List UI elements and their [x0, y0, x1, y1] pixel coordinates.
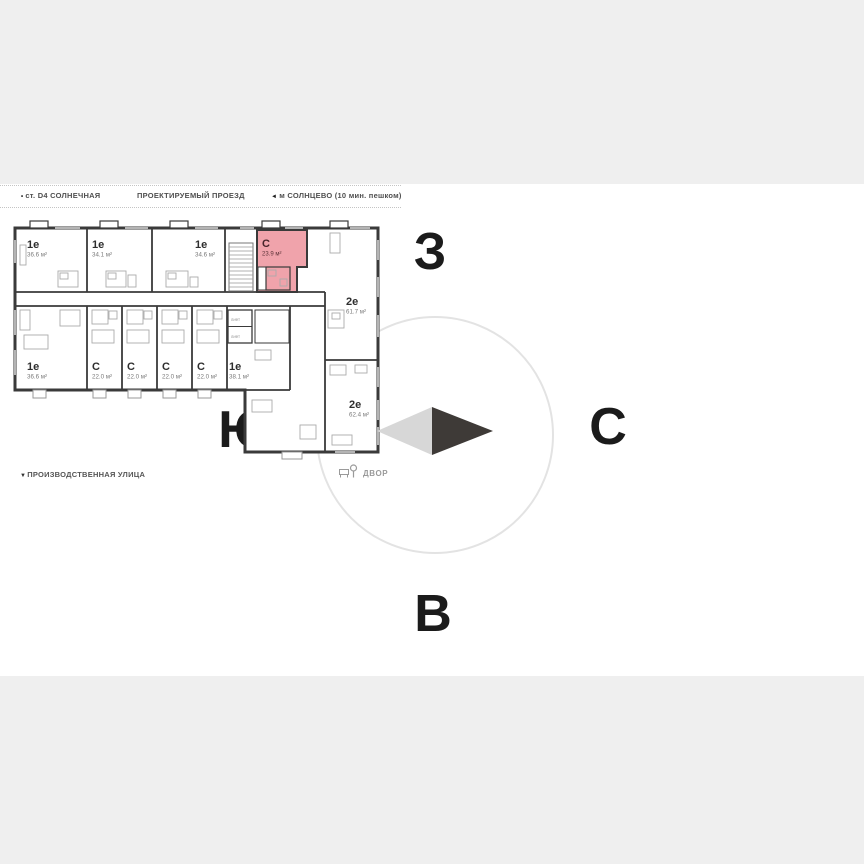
apt-area: 34.6 м²	[195, 252, 215, 259]
apt-type: С	[127, 361, 135, 373]
apt-area: 22.0 м²	[197, 374, 217, 381]
street-label-metro: ◄м СОЛНЦЕВО (10 мин. пешком)	[271, 191, 402, 200]
lift-label-1: ЛИФТ	[231, 318, 240, 322]
road-label-text: ПРОЕКТИРУЕМЫЙ ПРОЕЗД	[137, 191, 245, 200]
courtyard-label-text: ДВОР	[363, 469, 388, 479]
apt-area: 38.1 м²	[229, 374, 249, 381]
apt-type: 1е	[195, 239, 207, 251]
bottom-street-divider	[0, 207, 401, 208]
apt-type: 1е	[92, 239, 104, 251]
station-dot-icon: •	[21, 194, 23, 200]
compass-arrow-icon	[377, 407, 493, 455]
floorplan: ЛИФТ ЛИФТ 1е 36.6 м² 1е 34.1 м² 1е 34.6 …	[0, 215, 400, 477]
courtyard-label-group: ДВОР	[339, 464, 388, 479]
stairwell	[229, 243, 253, 291]
building-outline	[15, 228, 378, 452]
apt-area: 34.1 м²	[92, 252, 112, 259]
apt-area: 36.6 м²	[27, 252, 47, 259]
apt-area: 22.0 м²	[162, 374, 182, 381]
highlighted-apartment-shaft	[258, 267, 266, 290]
apt-type: 1е	[27, 239, 39, 251]
compass-west-letter: З	[414, 226, 447, 278]
apt-type: 2е	[346, 296, 358, 308]
compass-north-letter: С	[589, 401, 627, 453]
apt-type-highlighted: С	[262, 238, 270, 250]
top-street-divider	[0, 185, 401, 186]
apt-area-highlighted: 23.9 м²	[262, 252, 281, 258]
station-label-text: ст. D4 СОЛНЕЧНАЯ	[25, 191, 100, 200]
apt-area: 22.0 м²	[92, 374, 112, 381]
compass-arrow-dark-half	[432, 407, 493, 455]
street-label-station: •ст. D4 СОЛНЕЧНАЯ	[21, 191, 100, 200]
street-label-road: ПРОЕКТИРУЕМЫЙ ПРОЕЗД	[137, 191, 245, 200]
apt-type: С	[197, 361, 205, 373]
apt-area: 36.6 м²	[27, 374, 47, 381]
apt-type: С	[92, 361, 100, 373]
apt-type: 1е	[229, 361, 241, 373]
metro-arrow-icon: ◄	[271, 194, 277, 200]
apt-type: 1е	[27, 361, 39, 373]
apt-type: 2е	[349, 399, 361, 411]
apt-area: 61.7 м²	[346, 309, 366, 316]
apt-area: 22.0 м²	[127, 374, 147, 381]
apt-type: С	[162, 361, 170, 373]
metro-label-text: м СОЛНЦЕВО (10 мин. пешком)	[279, 191, 401, 200]
apt-area: 62.4 м²	[349, 412, 369, 419]
compass-arrow-light-half	[377, 407, 432, 455]
compass-east-letter: В	[414, 588, 452, 640]
courtyard-icon	[339, 464, 358, 479]
lift-label-2: ЛИФТ	[231, 335, 240, 339]
